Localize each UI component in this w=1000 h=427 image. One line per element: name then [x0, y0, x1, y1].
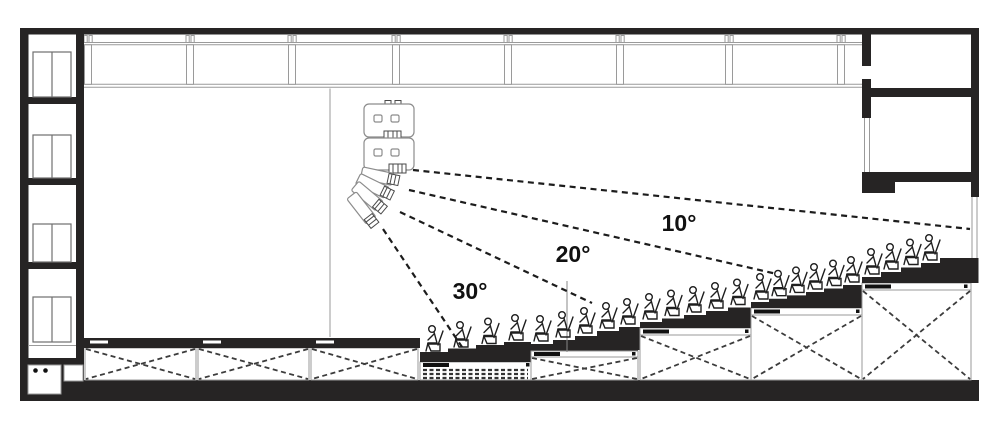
audience-figure	[534, 316, 551, 341]
fixture-dot	[33, 368, 38, 373]
audience-figure	[827, 260, 844, 285]
shaft-floor-slab	[24, 262, 80, 269]
shaft-inner-wall	[76, 34, 84, 365]
audience-figure	[482, 318, 499, 343]
rigging-frame	[389, 164, 406, 173]
left-outer-wall	[20, 28, 29, 401]
ceiling-truss	[84, 36, 862, 88]
elevator-shaft	[20, 34, 84, 401]
lower-room-wall-stub	[862, 97, 871, 118]
stage-deck	[84, 338, 420, 348]
cabinet-handle	[391, 149, 399, 156]
elevator-door	[33, 135, 71, 178]
tier-label-tag	[865, 285, 891, 289]
tier-1	[420, 342, 531, 380]
angle-labels: 10° 20° 30°	[453, 210, 697, 304]
stage-label-tag	[90, 341, 108, 344]
tier-label-dot	[856, 310, 860, 314]
landing-step	[940, 258, 979, 283]
tier-label-dot	[526, 363, 530, 367]
audience-figure	[790, 267, 807, 292]
angle-label-30: 30°	[453, 278, 488, 304]
basement-room	[28, 365, 61, 394]
basement-room-small	[64, 365, 83, 381]
audience-figure	[643, 294, 660, 319]
booth-front-ledge	[862, 172, 895, 193]
tier-label-tag	[643, 330, 669, 334]
upper-room-door-gap	[862, 66, 871, 79]
audience-figure	[621, 299, 638, 324]
right-outer-wall	[971, 28, 979, 197]
audience-figure	[709, 283, 726, 308]
coverage-line-mid-upper	[409, 190, 777, 274]
angle-label-20: 20°	[556, 241, 591, 267]
coverage-line-lower	[383, 229, 462, 347]
audience-figure	[454, 322, 471, 347]
angle-label-10: 10°	[662, 210, 697, 236]
elevator-door	[33, 224, 71, 262]
lower-room-floor	[893, 172, 979, 182]
tier-label-dot	[745, 330, 749, 334]
elevator-door	[33, 52, 71, 97]
audience-figure	[556, 312, 573, 337]
elevator-door	[33, 297, 71, 342]
audience-figure	[884, 244, 901, 269]
tier-label-tag	[534, 352, 560, 356]
section-svg: 10° 20° 30°	[0, 0, 1000, 427]
speaker-array	[347, 101, 414, 229]
fixture-dot	[43, 368, 48, 373]
tier-riser-box	[640, 335, 751, 380]
cabinet-handle	[374, 149, 382, 156]
audience-figure	[772, 270, 789, 295]
floor-slab	[24, 380, 979, 401]
upper-room-left-wall	[862, 34, 871, 88]
roof-slab	[20, 28, 979, 35]
tier-5	[862, 258, 979, 380]
upper-room-floor	[862, 88, 979, 97]
auditorium-section-drawing: 10° 20° 30°	[0, 0, 1000, 427]
audience-figure	[754, 274, 771, 299]
shaft-floor-slab	[24, 97, 80, 104]
audience-figure	[665, 290, 682, 315]
stage-label-tag	[203, 341, 221, 344]
tier-label-dot	[632, 352, 636, 356]
audience-figure	[865, 249, 882, 274]
stage-label-tag	[316, 341, 334, 344]
seating-tiers	[420, 258, 979, 380]
tier-label-tag	[423, 363, 449, 367]
audience-figure	[904, 239, 921, 264]
audience-figure	[731, 279, 748, 304]
shaft-floor-slab	[24, 178, 80, 185]
audience-figure	[923, 235, 940, 260]
tier-label-dot	[964, 285, 968, 289]
audience-figure	[808, 264, 825, 289]
audience-figure	[845, 257, 862, 282]
audience-figure	[509, 315, 526, 340]
audience-figure	[600, 303, 617, 328]
stage-platform	[84, 338, 420, 380]
audience-figure	[578, 308, 595, 333]
audience-figure	[426, 326, 443, 351]
audience-figure	[687, 287, 704, 312]
cabinet-handle	[391, 115, 399, 122]
tier-band	[420, 356, 531, 362]
cabinet-handle	[374, 115, 382, 122]
right-rooms	[862, 34, 979, 258]
tier-label-tag	[754, 310, 780, 314]
